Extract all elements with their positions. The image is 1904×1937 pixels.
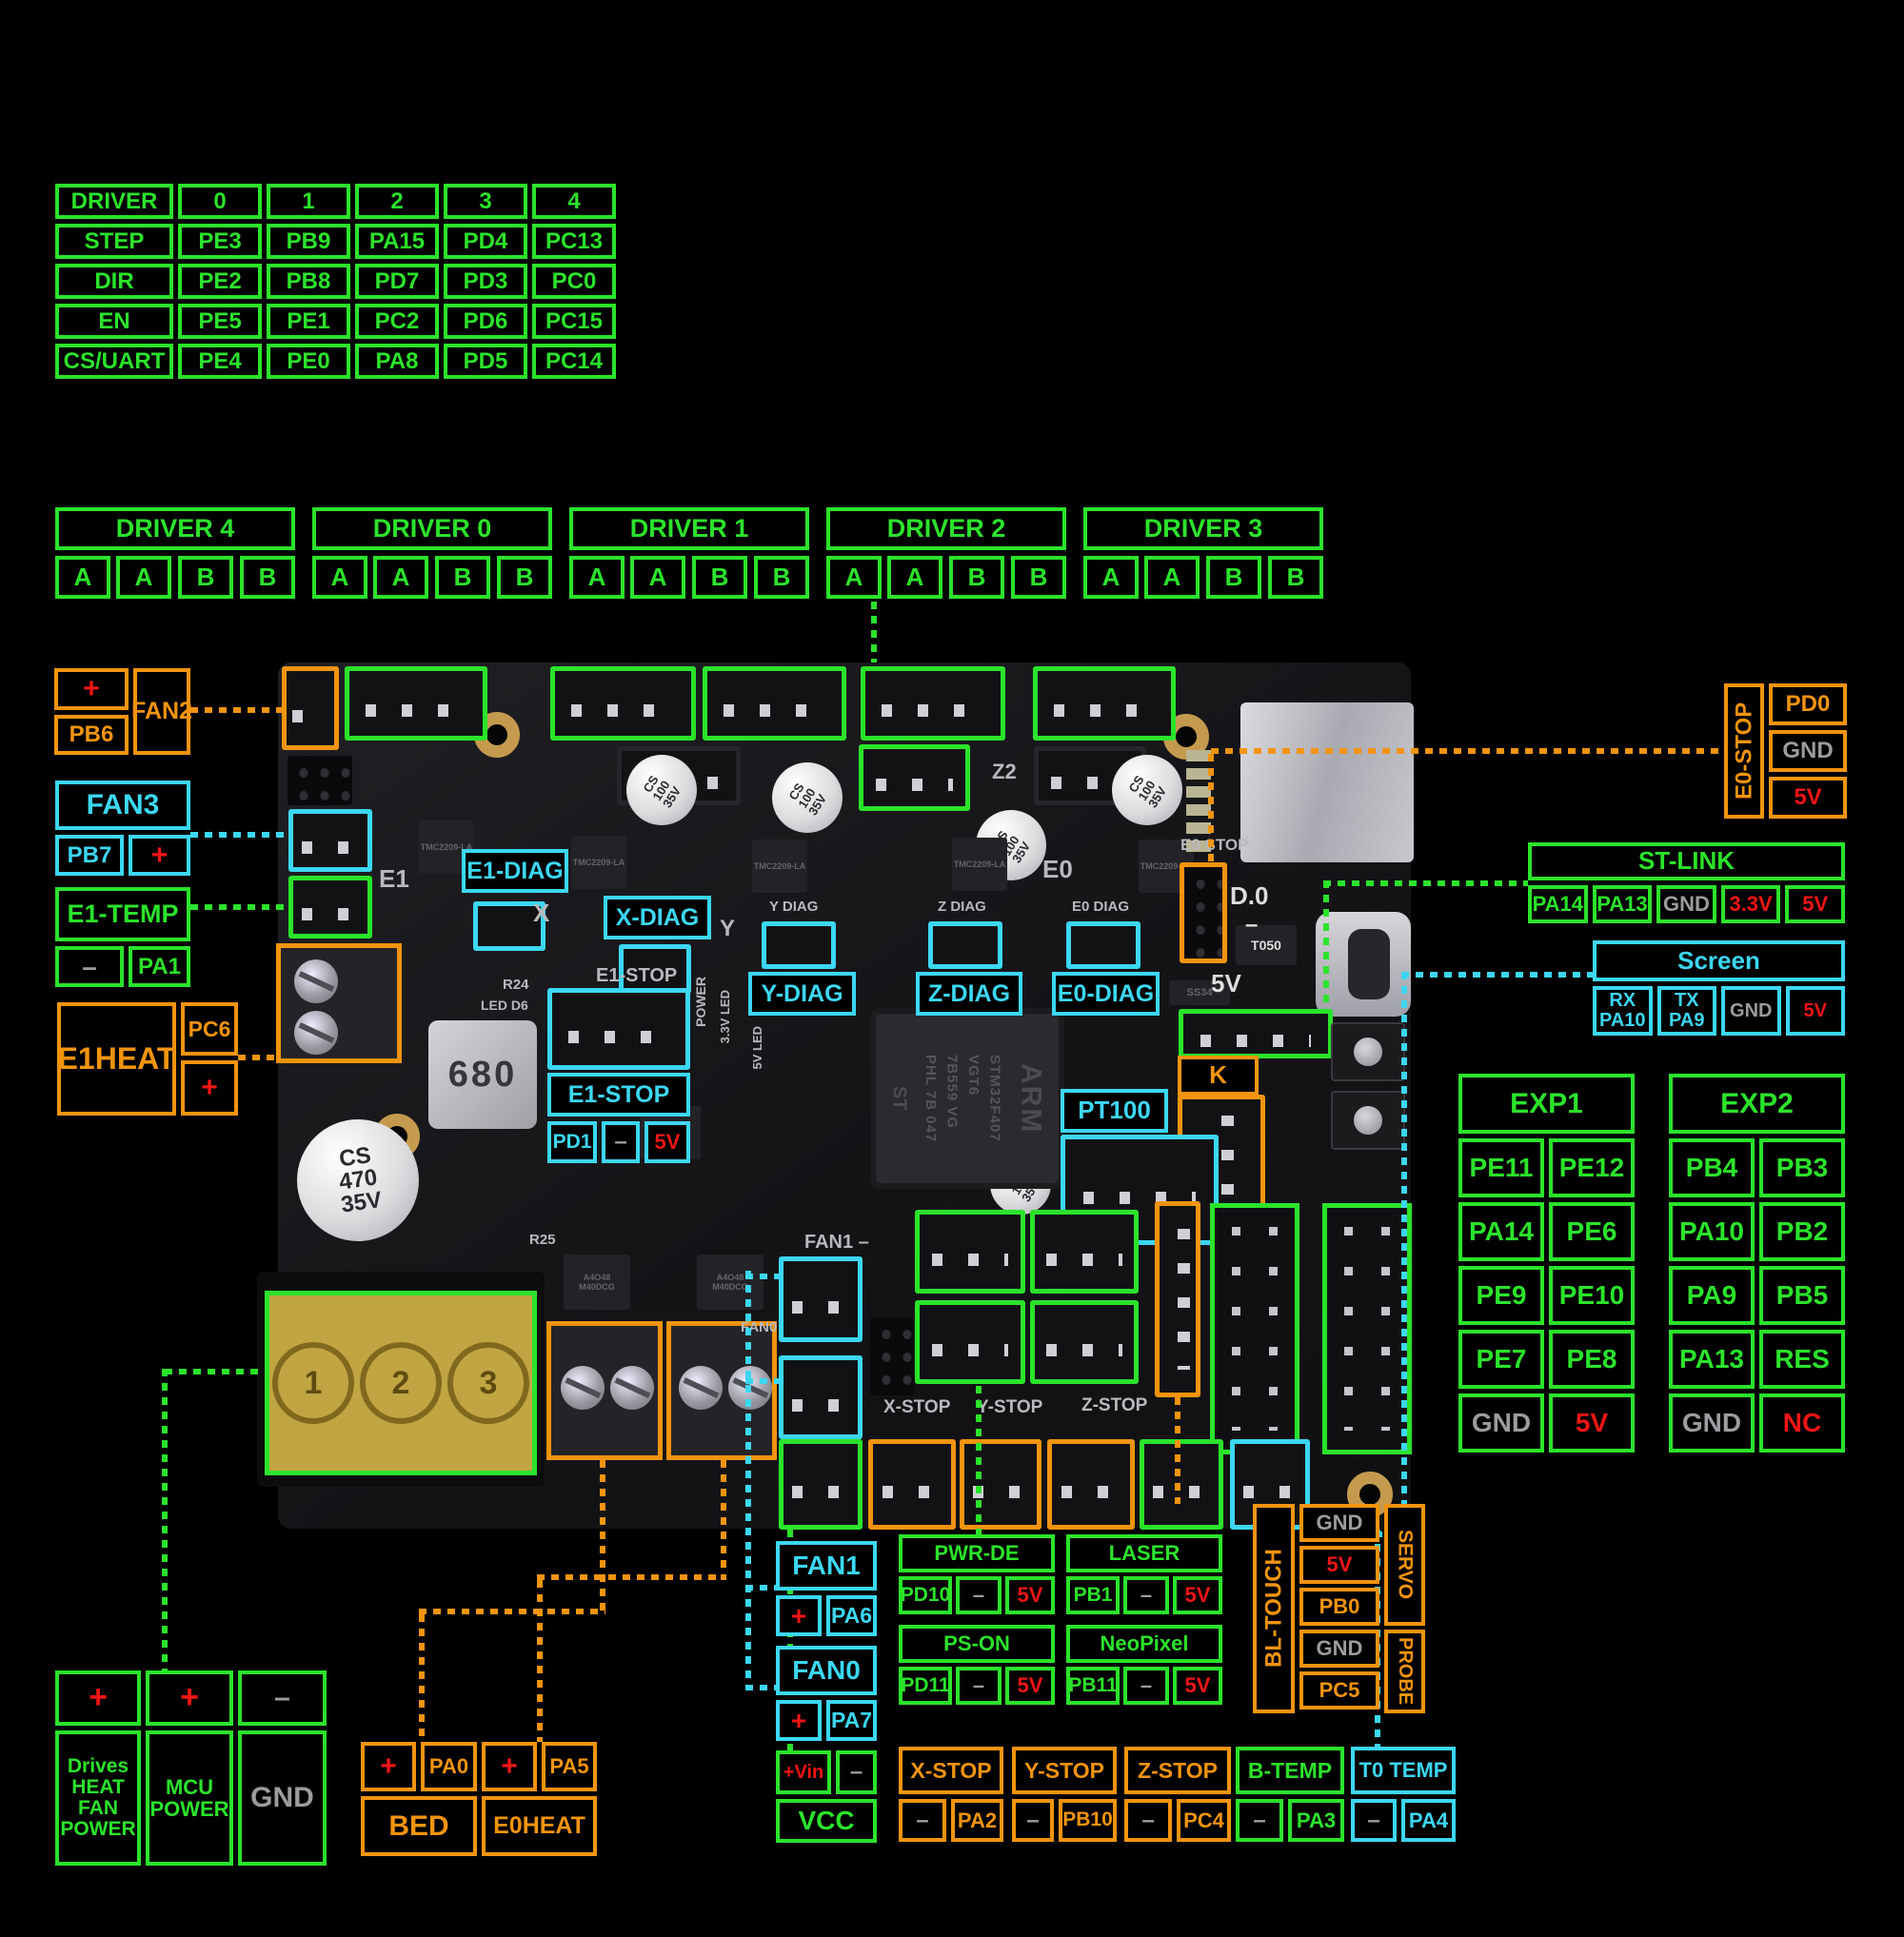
- e0stop-label-block: E0-STOP PD0 GND 5V: [1724, 683, 1847, 819]
- stepper-connector-e0: [1033, 666, 1176, 741]
- exp1-connector: [1210, 1203, 1299, 1454]
- e1heat-pin: PC6: [181, 1002, 238, 1056]
- pin-table-cell: PB9: [267, 224, 350, 259]
- y-diag-label: Y-DIAG: [748, 972, 856, 1016]
- silkscreen-e0stop: E0 STOP: [1180, 836, 1249, 855]
- exp2-pin: PB4: [1669, 1138, 1755, 1197]
- pin-table-cell: PD5: [444, 344, 527, 379]
- driver-pin-b2: B: [754, 556, 809, 599]
- fan0-label-block: FAN0 + PA7: [776, 1646, 877, 1741]
- driver-pin-a2: A: [630, 556, 685, 599]
- zstop-minus: –: [1124, 1799, 1172, 1842]
- pwrde-connector: [915, 1210, 1025, 1294]
- driver-chip: TMC2209-LA: [952, 838, 1007, 891]
- e0heat-plus: +: [482, 1742, 537, 1791]
- driver-chip: TMC2209-LA: [752, 840, 807, 893]
- driver-pin-a2: A: [373, 556, 428, 599]
- power-label-block: + + – Drives HEAT FAN POWER MCU POWER GN…: [55, 1670, 327, 1866]
- pson-connector: [915, 1300, 1025, 1384]
- laser-connector: [1030, 1210, 1139, 1294]
- driver-pin-a1: A: [55, 556, 110, 599]
- e0heat-label2: E0HEAT: [482, 1796, 597, 1856]
- pt100-label: PT100: [1061, 1089, 1168, 1133]
- laser-5v: 5V: [1173, 1576, 1222, 1614]
- neopixel-pin: PB11: [1066, 1667, 1120, 1705]
- pin-table-cell: PD7: [355, 264, 439, 299]
- leader-fan0-stub: [745, 1378, 779, 1384]
- arm-logo: ARM: [1015, 1063, 1047, 1134]
- silkscreen-e0: E0: [1042, 855, 1073, 884]
- driver-pin-a1: A: [826, 556, 882, 599]
- leader-e0stop-h: [1211, 748, 1724, 754]
- pwrde-pin: PD10: [899, 1576, 952, 1614]
- bed-terminal: [546, 1321, 663, 1460]
- driver-pin-a2: A: [116, 556, 171, 599]
- leader-fan0-label: [745, 1685, 776, 1690]
- power-plus1: +: [55, 1670, 141, 1726]
- pson-label-block: PS-ON PD11 – 5V: [899, 1625, 1055, 1705]
- bltouch-label-block: BL-TOUCH GND5VPB0GNDPC5 SERVO PROBE: [1253, 1504, 1425, 1713]
- k-label: K: [1178, 1056, 1259, 1096]
- bltouch-pin: PB0: [1299, 1588, 1379, 1626]
- silkscreen-e1: E1: [379, 864, 409, 894]
- exp1-pin: PE10: [1549, 1266, 1635, 1325]
- silkscreen-e0diag: E0 DIAG: [1072, 899, 1129, 915]
- e0-diag-jumper: [1066, 921, 1140, 969]
- laser-label-block: LASER PB1 – 5V: [1066, 1534, 1222, 1614]
- pin-table-cell: 4: [532, 184, 616, 219]
- stlink-pin: 5V: [1785, 885, 1845, 923]
- screen-pins: RX PA10TX PA9GND5V: [1593, 986, 1845, 1036]
- leader-e0stop-v: [1208, 754, 1214, 862]
- exp1-pin: PE8: [1549, 1330, 1635, 1389]
- stepper-connector-e1: [345, 666, 487, 741]
- z-diag-jumper: [928, 921, 1002, 969]
- e1-diag-label: E1-DIAG: [462, 849, 568, 893]
- stlink-pin: PA13: [1593, 885, 1653, 923]
- stlink-pin: 3.3V: [1721, 885, 1781, 923]
- leader-e0heat-v1: [721, 1460, 726, 1580]
- vcc-connector: [779, 1439, 863, 1530]
- leader-e1temp: [190, 904, 288, 910]
- bltouch-pin: GND: [1299, 1630, 1379, 1668]
- xstop-pin: PA2: [951, 1799, 1003, 1842]
- bltouch-pin: GND: [1299, 1504, 1379, 1542]
- screw: [294, 1011, 338, 1055]
- leader-fan1-stub: [745, 1274, 779, 1279]
- pin-table-cell: PD6: [444, 304, 527, 339]
- silkscreen-5vled: 5V LED: [750, 1026, 764, 1070]
- pin-table-cell: PE2: [178, 264, 262, 299]
- exp2-pin: PA9: [1669, 1266, 1755, 1325]
- driver-pin-b2: B: [240, 556, 295, 599]
- e1stop-5v: 5V: [645, 1121, 690, 1163]
- exp2-pin: PB5: [1759, 1266, 1845, 1325]
- x-diag-label: X-DIAG: [604, 896, 711, 939]
- mosfet: A4O48 M40DCG: [564, 1255, 630, 1310]
- driver-block: DRIVER 0 A A B B: [312, 507, 552, 599]
- e1stop-connector: [547, 988, 690, 1070]
- fan3-label: FAN3: [55, 781, 190, 830]
- stlink-pin: GND: [1656, 885, 1716, 923]
- pin-table-cell: DRIVER: [55, 184, 173, 219]
- pwrde-title: PWR-DE: [899, 1534, 1055, 1572]
- driver-pin-b1: B: [949, 556, 1004, 599]
- ystop-minus: –: [1012, 1799, 1054, 1842]
- fan1-pin: PA6: [826, 1595, 877, 1636]
- neopixel-5v: 5V: [1173, 1667, 1222, 1705]
- vcc-vin: +Vin: [776, 1750, 831, 1794]
- t0temp-label-block: T0 TEMP – PA4: [1351, 1747, 1456, 1842]
- pin-table-cell: PD4: [444, 224, 527, 259]
- pwrde-5v: 5V: [1005, 1576, 1055, 1614]
- driver-blocks-row: DRIVER 4 A A B B DRIVER 0 A A B B DRIVER…: [55, 507, 1323, 599]
- exp1-pin: PA14: [1458, 1202, 1544, 1261]
- btemp-minus: –: [1236, 1799, 1283, 1842]
- silkscreen-x: X: [533, 899, 549, 928]
- silkscreen-zdiag: Z DIAG: [938, 899, 986, 915]
- pson-pin: PD11: [899, 1667, 952, 1705]
- z-diag-label: Z-DIAG: [916, 972, 1022, 1016]
- pin-table-cell: PA15: [355, 224, 439, 259]
- e0-diag-label: E0-DIAG: [1052, 972, 1160, 1016]
- screen-pin: 5V: [1786, 986, 1846, 1036]
- terminal-screw-1: 1: [272, 1342, 354, 1424]
- driver-chip: TMC2209-LA: [571, 836, 626, 889]
- driver-pin-b1: B: [692, 556, 747, 599]
- btemp-title: B-TEMP: [1236, 1747, 1344, 1794]
- leader-bltouch: [1175, 1397, 1180, 1504]
- bed-pin: PA0: [421, 1742, 477, 1791]
- driver-pin-a1: A: [1083, 556, 1139, 599]
- bed-label: BED: [361, 1796, 477, 1856]
- leader-e0heat-h: [537, 1574, 726, 1580]
- xstop-connector: [868, 1439, 956, 1530]
- exp1-pin: PE6: [1549, 1202, 1635, 1261]
- e1stop-pin: PD1: [547, 1121, 597, 1163]
- sd-card-slot: [1240, 702, 1414, 862]
- t0temp-title: T0 TEMP: [1351, 1747, 1456, 1794]
- pin-table-cell: 2: [355, 184, 439, 219]
- e0heat-terminal: [666, 1321, 777, 1460]
- driver-pin-b2: B: [497, 556, 552, 599]
- st-logo: ST: [888, 1086, 910, 1111]
- zstop-pin: PC4: [1177, 1799, 1231, 1842]
- exp2-pin: NC: [1759, 1393, 1845, 1453]
- bltouch-pin: 5V: [1299, 1546, 1379, 1584]
- pwrde-label-block: PWR-DE PD10 – 5V: [899, 1534, 1055, 1614]
- reset-button: [1331, 1022, 1405, 1081]
- leader-fan2: [190, 707, 282, 713]
- boot-button: [1331, 1091, 1405, 1150]
- driver-block-title: DRIVER 1: [569, 507, 809, 550]
- ystop-title: Y-STOP: [1012, 1747, 1117, 1794]
- exp1-block: EXP1 PE11PE12PA14PE6PE9PE10PE7PE8GND5V: [1458, 1074, 1635, 1457]
- silkscreen-minus: –: [1245, 912, 1258, 939]
- screw: [294, 959, 338, 1003]
- e0stop-pin: PD0: [1769, 683, 1847, 725]
- fan2-connector: [282, 666, 339, 750]
- leader-fan1-label: [745, 1585, 776, 1591]
- power-minus: –: [238, 1670, 327, 1726]
- leader-fans-v: [745, 1271, 751, 1690]
- xstop-title: X-STOP: [899, 1747, 1003, 1794]
- e1heat-plus: +: [181, 1060, 238, 1116]
- driver-block-title: DRIVER 3: [1083, 507, 1323, 550]
- e0stop-5v: 5V: [1769, 777, 1847, 819]
- vcc-label: VCC: [776, 1799, 877, 1843]
- driver-pin-a2: A: [1144, 556, 1200, 599]
- exp2-pin: PA13: [1669, 1330, 1755, 1389]
- exp2-pins: PB4PB3PA10PB2PA9PB5PA13RESGNDNC: [1669, 1138, 1845, 1453]
- e0heat-label-block: + PA5 E0HEAT: [482, 1742, 597, 1856]
- pin-table-cell: PB8: [267, 264, 350, 299]
- exp1-pin: PE7: [1458, 1330, 1544, 1389]
- fan1-connector: [779, 1256, 863, 1342]
- e1temp-minus: –: [55, 946, 124, 987]
- driver-pin-a1: A: [312, 556, 367, 599]
- leader-bed-v1: [600, 1460, 605, 1614]
- exp2-title: EXP2: [1669, 1074, 1845, 1134]
- exp1-pin: PE9: [1458, 1266, 1544, 1325]
- pin-table-cell: STEP: [55, 224, 173, 259]
- capacitor-100uf: CS 100 35V: [772, 762, 843, 833]
- driver-block: DRIVER 3 A A B B: [1083, 507, 1323, 599]
- silkscreen-zstop: Z-STOP: [1081, 1395, 1147, 1416]
- pin-table-cell: PE4: [178, 344, 262, 379]
- stepper-connector-y: [703, 666, 846, 741]
- fan2-label: FAN2: [133, 668, 190, 755]
- pin-table-cell: PE1: [267, 304, 350, 339]
- exp2-pin: PB3: [1759, 1138, 1845, 1197]
- driver-block-title: DRIVER 2: [826, 507, 1066, 550]
- laser-minus: –: [1123, 1576, 1169, 1614]
- power-input-terminal: 1 2 3: [265, 1291, 537, 1475]
- pin-table-cell: PE5: [178, 304, 262, 339]
- e1temp-connector: [288, 876, 372, 939]
- bltouch-pin: PC5: [1299, 1671, 1379, 1710]
- xstop-minus: –: [899, 1799, 946, 1842]
- power-gnd: GND: [238, 1730, 327, 1866]
- screen-pin: TX PA9: [1657, 986, 1717, 1036]
- neopixel-connector: [1030, 1300, 1139, 1384]
- e1temp-label-block: E1-TEMP – PA1: [55, 887, 190, 987]
- zstop-title: Z-STOP: [1124, 1747, 1231, 1794]
- pin-table-cell: PD3: [444, 264, 527, 299]
- driver-block: DRIVER 4 A A B B: [55, 507, 295, 599]
- driver-pin-table: DRIVER01234STEPPE3PB9PA15PD4PC13DIRPE2PB…: [55, 184, 616, 379]
- leader-e1heat: [238, 1055, 279, 1060]
- pin-header-2x4: [870, 1317, 914, 1395]
- exp2-pin: GND: [1669, 1393, 1755, 1453]
- bed-label-block: + PA0 BED: [361, 1742, 477, 1856]
- leader-screen-h: [1401, 972, 1593, 978]
- inductor-680: 680: [428, 1020, 537, 1129]
- fan1-label-block: FAN1 + PA6: [776, 1541, 877, 1636]
- neopixel-title: NeoPixel: [1066, 1625, 1222, 1663]
- fan0-plus: +: [776, 1700, 822, 1741]
- silkscreen-ystop: Y-STOP: [977, 1397, 1042, 1418]
- t0temp-minus: –: [1351, 1799, 1397, 1842]
- stm32-mcu: ST STM32F407 VGT6 7B559 VG PHL 7B 047 AR…: [876, 1014, 1059, 1183]
- pin-table-cell: PC2: [355, 304, 439, 339]
- driver-pin-b2: B: [1268, 556, 1323, 599]
- e1stop-minus: –: [602, 1121, 640, 1163]
- laser-title: LASER: [1066, 1534, 1222, 1572]
- driver-pin-b1: B: [435, 556, 490, 599]
- silkscreen-r25: R25: [529, 1232, 556, 1248]
- stepper-connector-x: [550, 666, 696, 741]
- stepper-connector-z: [861, 666, 1005, 741]
- leader-power-v: [162, 1369, 168, 1670]
- silkscreen-power: POWER: [693, 977, 708, 1027]
- leader-screen-v: [1401, 972, 1407, 1534]
- fan0-pin: PA7: [826, 1700, 877, 1741]
- driver-pin-a2: A: [887, 556, 942, 599]
- screen-pin: RX PA10: [1593, 986, 1653, 1036]
- power-drives: Drives HEAT FAN POWER: [55, 1730, 141, 1866]
- leader-bed-v2: [419, 1614, 425, 1742]
- e0stop-header: [1180, 862, 1227, 963]
- pin-table-cell: CS/UART: [55, 344, 173, 379]
- fan0-connector: [779, 1355, 863, 1439]
- silkscreen-ydiag: Y DIAG: [769, 899, 818, 915]
- driver-block: DRIVER 1 A A B B: [569, 507, 809, 599]
- exp2-pin: PB2: [1759, 1202, 1845, 1261]
- pin-table-cell: PE3: [178, 224, 262, 259]
- screw: [561, 1366, 605, 1410]
- neopixel-label-block: NeoPixel PB11 – 5V: [1066, 1625, 1222, 1705]
- pin-table-cell: 0: [178, 184, 262, 219]
- silkscreen-fan1: FAN1 –: [804, 1232, 869, 1254]
- ystop-connector: [960, 1439, 1041, 1530]
- silkscreen-5v: 5V: [1211, 969, 1241, 998]
- btemp-connector: [1140, 1439, 1223, 1530]
- screw: [679, 1366, 723, 1410]
- y-diag-jumper: [762, 921, 836, 969]
- leader-driver2: [871, 602, 877, 662]
- driver-block: DRIVER 2 A A B B: [826, 507, 1066, 599]
- power-plus2: +: [146, 1670, 233, 1726]
- leader-power-h: [165, 1369, 267, 1374]
- screw: [610, 1366, 654, 1410]
- screen-title: Screen: [1593, 940, 1845, 981]
- exp1-pin: PE11: [1458, 1138, 1544, 1197]
- silkscreen-d0: D.0: [1230, 881, 1268, 911]
- exp1-pins: PE11PE12PA14PE6PE9PE10PE7PE8GND5V: [1458, 1138, 1635, 1453]
- pin-table-cell: 1: [267, 184, 350, 219]
- xstop-label-block: X-STOP – PA2: [899, 1747, 1003, 1842]
- screen-block: Screen RX PA10TX PA9GND5V: [1593, 940, 1845, 1036]
- fan1-title: FAN1: [776, 1541, 877, 1591]
- e1stop-label-block: E1-STOP PD1 – 5V: [547, 1073, 690, 1163]
- pin-table-cell: PA8: [355, 344, 439, 379]
- btemp-pin: PA3: [1288, 1799, 1344, 1842]
- pin-table-cell: PC15: [532, 304, 616, 339]
- bltouch-label: BL-TOUCH: [1253, 1504, 1295, 1713]
- e1stop-title: E1-STOP: [547, 1073, 690, 1117]
- leader-fan3: [190, 832, 288, 838]
- pson-5v: 5V: [1005, 1667, 1055, 1705]
- leader-stlink-h: [1323, 880, 1528, 886]
- bltouch-servo: SERVO: [1384, 1504, 1425, 1626]
- pin-table-cell: PC13: [532, 224, 616, 259]
- pson-title: PS-ON: [899, 1625, 1055, 1663]
- driver-pin-b2: B: [1011, 556, 1066, 599]
- silkscreen-z2: Z2: [992, 760, 1017, 784]
- leader-stlink-v: [1323, 880, 1329, 1012]
- exp1-pin: 5V: [1549, 1393, 1635, 1453]
- vcc-label-block: +Vin – VCC: [776, 1750, 877, 1843]
- leader-pwrde: [976, 1386, 982, 1534]
- z2-connector: [859, 744, 970, 811]
- exp1-title: EXP1: [1458, 1074, 1635, 1134]
- e1heat-label: E1HEAT: [57, 1002, 176, 1116]
- stlink-pins: PA14PA13GND3.3V5V: [1528, 885, 1845, 923]
- exp2-pin: RES: [1759, 1330, 1845, 1389]
- e1temp-pin: PA1: [129, 946, 190, 987]
- pwrde-minus: –: [956, 1576, 1002, 1614]
- bltouch-probe: PROBE: [1384, 1630, 1425, 1713]
- ystop-pin: PB10: [1059, 1799, 1117, 1842]
- pin-table-cell: DIR: [55, 264, 173, 299]
- exp1-pin: GND: [1458, 1393, 1544, 1453]
- terminal-screw-2: 2: [360, 1342, 442, 1424]
- fan3-pin: PB7: [55, 835, 124, 876]
- screen-pin: GND: [1721, 986, 1781, 1036]
- exp2-connector: [1322, 1203, 1412, 1454]
- ystop-label-block: Y-STOP – PB10: [1012, 1747, 1117, 1842]
- pin-header-2x3: [288, 756, 352, 805]
- silkscreen-r24: R24: [503, 977, 529, 993]
- mosfet: A4O48 M40DCG: [697, 1255, 764, 1310]
- laser-pin: PB1: [1066, 1576, 1120, 1614]
- stlink-header: [1179, 1009, 1333, 1058]
- fan2-label-block: + PB6 FAN2: [54, 668, 190, 755]
- pin-table-cell: 3: [444, 184, 527, 219]
- driver-block-title: DRIVER 0: [312, 507, 552, 550]
- silkscreen-e1stop: E1-STOP: [596, 965, 677, 987]
- fan3-label-block: FAN3 PB7 +: [55, 781, 190, 876]
- bltouch-pins: GND5VPB0GNDPC5: [1299, 1504, 1379, 1710]
- bltouch-connector: [1155, 1201, 1200, 1397]
- stlink-pin: PA14: [1528, 885, 1588, 923]
- silkscreen-y: Y: [720, 916, 735, 942]
- e0stop-label: E0-STOP: [1724, 683, 1764, 819]
- leader-e0heat-v2: [537, 1580, 543, 1742]
- zstop-label-block: Z-STOP – PC4: [1124, 1747, 1231, 1842]
- silkscreen-xstop: X-STOP: [883, 1397, 950, 1418]
- usb-c-port: [1316, 912, 1411, 1017]
- pin-table-cell: PE0: [267, 344, 350, 379]
- driver-block-title: DRIVER 4: [55, 507, 295, 550]
- driver-pin-b1: B: [1206, 556, 1261, 599]
- pson-minus: –: [956, 1667, 1002, 1705]
- neopixel-minus: –: [1123, 1667, 1169, 1705]
- terminal-screw-3: 3: [447, 1342, 529, 1424]
- t0temp-pin: PA4: [1401, 1799, 1456, 1842]
- e0stop-gnd: GND: [1769, 730, 1847, 772]
- bed-plus: +: [361, 1742, 416, 1791]
- driver-pin-b1: B: [178, 556, 233, 599]
- exp2-block: EXP2 PB4PB3PA10PB2PA9PB5PA13RESGNDNC: [1669, 1074, 1845, 1457]
- fan3-plus: +: [129, 835, 190, 876]
- vcc-minus: –: [836, 1750, 877, 1794]
- pin-table-cell: EN: [55, 304, 173, 339]
- silkscreen-led-d6: LED D6: [481, 998, 528, 1013]
- pin-table-cell: PC14: [532, 344, 616, 379]
- exp1-pin: PE12: [1549, 1138, 1635, 1197]
